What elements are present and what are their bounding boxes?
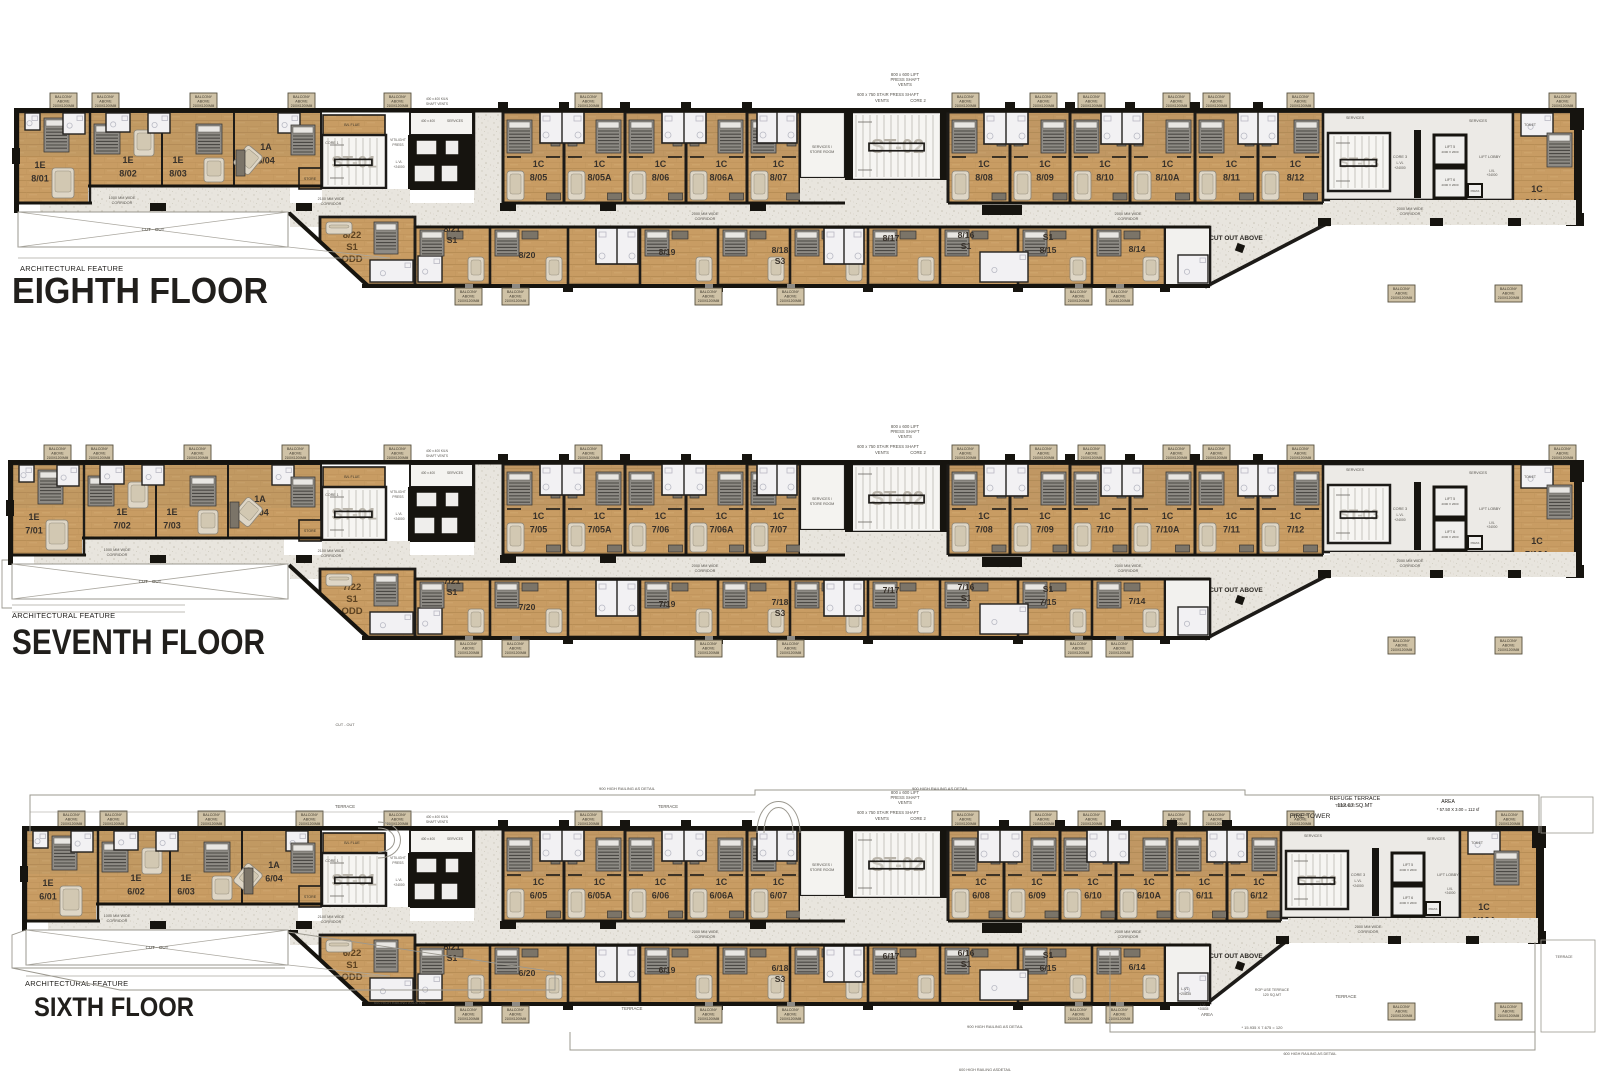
svg-text:ABOVE: ABOVE bbox=[1085, 452, 1098, 456]
svg-text:S1: S1 bbox=[961, 959, 972, 969]
svg-text:BALCONY: BALCONY bbox=[287, 447, 305, 451]
svg-text:VENTS: VENTS bbox=[898, 800, 912, 805]
svg-text:8/10A: 8/10A bbox=[1155, 173, 1180, 183]
svg-text:BALCONY: BALCONY bbox=[105, 813, 123, 817]
svg-text:1C: 1C bbox=[1226, 511, 1238, 521]
svg-text:TERRACE: TERRACE bbox=[335, 804, 355, 809]
svg-text:1C: 1C bbox=[1031, 877, 1043, 887]
svg-text:S1: S1 bbox=[346, 960, 358, 971]
svg-text:BALCONY: BALCONY bbox=[507, 290, 525, 294]
svg-text:1C: 1C bbox=[716, 511, 728, 521]
svg-text:1A: 1A bbox=[254, 494, 266, 504]
svg-text:+24000: +24000 bbox=[393, 165, 404, 169]
svg-text:1C: 1C bbox=[1290, 511, 1302, 521]
svg-text:8/14: 8/14 bbox=[1129, 244, 1146, 254]
svg-text:CUT - OUT: CUT - OUT bbox=[335, 723, 355, 727]
svg-text:ABOVE: ABOVE bbox=[1085, 818, 1098, 822]
svg-text:LIFT LOBBY: LIFT LOBBY bbox=[1479, 155, 1501, 159]
svg-text:BALCONY: BALCONY bbox=[63, 813, 81, 817]
svg-text:S1: S1 bbox=[1043, 584, 1054, 594]
svg-text:2100X1200MM: 2100X1200MM bbox=[698, 1017, 720, 1021]
svg-text:8/10: 8/10 bbox=[1096, 173, 1114, 183]
svg-text:BALCONY: BALCONY bbox=[957, 95, 975, 99]
svg-text:S1: S1 bbox=[961, 241, 972, 251]
svg-text:2100X1200MM: 2100X1200MM bbox=[698, 651, 720, 655]
svg-text:7/11: 7/11 bbox=[1223, 525, 1240, 535]
svg-text:ABOVE: ABOVE bbox=[784, 647, 797, 651]
svg-text:120 SQ.MT: 120 SQ.MT bbox=[1263, 993, 1282, 997]
svg-text:BALCONY: BALCONY bbox=[1035, 813, 1053, 817]
svg-text:1C: 1C bbox=[773, 511, 785, 521]
svg-text:SHAFT VENTS: SHAFT VENTS bbox=[426, 820, 448, 824]
svg-text:1C: 1C bbox=[1531, 184, 1543, 194]
svg-text:+24000: +24000 bbox=[1394, 518, 1406, 522]
svg-text:ABOVE: ABOVE bbox=[99, 100, 112, 104]
svg-text:CORRIDOR: CORRIDOR bbox=[695, 935, 716, 939]
svg-text:LIFT 6: LIFT 6 bbox=[1445, 178, 1455, 182]
svg-text:2100X1200MM: 2100X1200MM bbox=[291, 104, 313, 108]
svg-text:CORRIDOR: CORRIDOR bbox=[1400, 212, 1421, 216]
svg-text:ABOVE: ABOVE bbox=[1170, 100, 1183, 104]
svg-text:2100X1200MM: 2100X1200MM bbox=[1109, 1017, 1131, 1021]
svg-text:1C: 1C bbox=[773, 159, 785, 169]
svg-text:2100X1200MM: 2100X1200MM bbox=[955, 456, 977, 460]
svg-text:600 HIGH RAILING ASDETAIL: 600 HIGH RAILING ASDETAIL bbox=[374, 1001, 426, 1005]
svg-text:2100X1200MM: 2100X1200MM bbox=[1109, 651, 1131, 655]
svg-text:BALCONY: BALCONY bbox=[49, 447, 67, 451]
svg-text:8/02: 8/02 bbox=[119, 169, 137, 179]
svg-text:1C: 1C bbox=[773, 877, 785, 887]
svg-text:2000 MM WIDE: 2000 MM WIDE bbox=[692, 930, 719, 934]
svg-text:ABOVE: ABOVE bbox=[391, 100, 404, 104]
svg-text:1C: 1C bbox=[1226, 159, 1238, 169]
svg-text:1C: 1C bbox=[1531, 536, 1543, 546]
svg-text:SIXTH FLOOR: SIXTH FLOOR bbox=[34, 992, 194, 1022]
svg-text:FIRE TOWER: FIRE TOWER bbox=[1290, 813, 1331, 820]
svg-text:8/12: 8/12 bbox=[1287, 173, 1305, 183]
svg-text:2100X1200MM: 2100X1200MM bbox=[1290, 456, 1312, 460]
svg-text:BALCONY: BALCONY bbox=[1168, 447, 1186, 451]
svg-text:2000 X 2600: 2000 X 2600 bbox=[1399, 868, 1416, 872]
svg-text:L.VL: L.VL bbox=[1397, 513, 1404, 517]
svg-text:1C: 1C bbox=[594, 159, 606, 169]
svg-text:BALCONY: BALCONY bbox=[203, 813, 221, 817]
svg-text:7/19: 7/19 bbox=[659, 599, 676, 609]
svg-text:2100X1200MM: 2100X1200MM bbox=[1206, 456, 1228, 460]
svg-text:8/01: 8/01 bbox=[31, 174, 49, 184]
svg-text:BALCONY: BALCONY bbox=[782, 642, 800, 646]
svg-text:1C: 1C bbox=[1087, 877, 1099, 887]
svg-text:ABOVE: ABOVE bbox=[959, 818, 972, 822]
svg-text:STORE: STORE bbox=[304, 895, 317, 899]
svg-text:ABOVE: ABOVE bbox=[191, 452, 204, 456]
svg-text:1C: 1C bbox=[594, 877, 606, 887]
svg-text:TERRACE: TERRACE bbox=[622, 1006, 643, 1011]
svg-text:2000 X 2600: 2000 X 2600 bbox=[1441, 535, 1458, 539]
svg-text:BALCONY: BALCONY bbox=[700, 642, 718, 646]
svg-text:ABOVE: ABOVE bbox=[1294, 452, 1307, 456]
svg-text:BALCONY: BALCONY bbox=[700, 1008, 718, 1012]
svg-text:2000 MM WIDE: 2000 MM WIDE bbox=[1397, 559, 1424, 563]
svg-text:1C: 1C bbox=[594, 511, 606, 521]
svg-text:7/20: 7/20 bbox=[519, 602, 536, 612]
svg-text:2100X1200MM: 2100X1200MM bbox=[1068, 1017, 1090, 1021]
svg-text:S3: S3 bbox=[775, 256, 786, 266]
svg-text:ABOVE: ABOVE bbox=[1210, 100, 1223, 104]
svg-text:BALCONY: BALCONY bbox=[700, 290, 718, 294]
svg-text:ABOVE: ABOVE bbox=[462, 1013, 475, 1017]
svg-text:CUT - OUT: CUT - OUT bbox=[146, 945, 169, 950]
svg-text:8/20: 8/20 bbox=[519, 250, 536, 260]
svg-text:1E: 1E bbox=[130, 873, 141, 883]
svg-text:8/09: 8/09 bbox=[1036, 173, 1054, 183]
svg-text:SERVICES: SERVICES bbox=[447, 119, 463, 123]
svg-text:ABOVE: ABOVE bbox=[1210, 452, 1223, 456]
svg-text:L.VL: L.VL bbox=[1355, 879, 1362, 883]
svg-text:2000 X 2600: 2000 X 2600 bbox=[1441, 502, 1458, 506]
svg-text:ABOVE: ABOVE bbox=[1294, 100, 1307, 104]
svg-text:CORRIDOR: CORRIDOR bbox=[1400, 564, 1421, 568]
svg-text:7/08: 7/08 bbox=[975, 525, 993, 535]
svg-text:AREA: AREA bbox=[1201, 1012, 1213, 1017]
svg-text:CORRIDOR: CORRIDOR bbox=[321, 920, 342, 924]
svg-text:BALCONY: BALCONY bbox=[1111, 1008, 1129, 1012]
svg-text:VENTS: VENTS bbox=[875, 450, 889, 455]
svg-text:CORE 1: CORE 1 bbox=[325, 859, 338, 863]
svg-text:BALCONY: BALCONY bbox=[460, 642, 478, 646]
svg-text:2100X1200MM: 2100X1200MM bbox=[299, 822, 321, 826]
svg-text:1E: 1E bbox=[166, 507, 177, 517]
svg-text:ABOVE: ABOVE bbox=[959, 100, 972, 104]
svg-text:ABOVE: ABOVE bbox=[93, 452, 106, 456]
svg-text:1C: 1C bbox=[533, 511, 545, 521]
svg-text:SERVICES: SERVICES bbox=[1427, 837, 1446, 841]
svg-text:ABOVE: ABOVE bbox=[1502, 292, 1515, 296]
svg-text:6/05: 6/05 bbox=[530, 891, 548, 901]
svg-text:7/03: 7/03 bbox=[163, 521, 181, 531]
svg-text:2100X1200MM: 2100X1200MM bbox=[1081, 456, 1103, 460]
svg-text:1E: 1E bbox=[116, 507, 127, 517]
svg-text:SERVICES /: SERVICES / bbox=[812, 863, 832, 867]
svg-text:6/12: 6/12 bbox=[1250, 891, 1268, 901]
svg-text:BALCONY: BALCONY bbox=[1111, 642, 1129, 646]
svg-text:CORE 3: CORE 3 bbox=[1393, 507, 1407, 511]
svg-text:7/02: 7/02 bbox=[113, 521, 131, 531]
svg-text:2100X1200MM: 2100X1200MM bbox=[95, 104, 117, 108]
svg-text:2100X1200MM: 2100X1200MM bbox=[1498, 1014, 1520, 1018]
svg-text:BALCONY: BALCONY bbox=[507, 1008, 525, 1012]
svg-text:1C: 1C bbox=[533, 159, 545, 169]
svg-text:ABOVE: ABOVE bbox=[1072, 295, 1085, 299]
svg-text:SERVICES: SERVICES bbox=[1469, 119, 1488, 123]
svg-text:6/18: 6/18 bbox=[772, 963, 789, 973]
svg-text:1C: 1C bbox=[1478, 902, 1490, 912]
svg-text:CORE 2: CORE 2 bbox=[910, 816, 926, 821]
svg-text:LIFT 6: LIFT 6 bbox=[1445, 530, 1455, 534]
svg-text:1A: 1A bbox=[260, 142, 272, 152]
svg-text:2100X1200MM: 2100X1200MM bbox=[1081, 104, 1103, 108]
svg-text:CORE 2: CORE 2 bbox=[910, 98, 926, 103]
svg-text:2000 X 2600: 2000 X 2600 bbox=[1441, 150, 1458, 154]
svg-text:TOILET: TOILET bbox=[1471, 841, 1483, 845]
svg-text:2100X1200MM: 2100X1200MM bbox=[89, 456, 111, 460]
svg-text:S1: S1 bbox=[346, 242, 358, 253]
svg-text:CORRIDOR: CORRIDOR bbox=[1118, 217, 1139, 221]
svg-text:8/19: 8/19 bbox=[659, 247, 676, 257]
svg-text:S1: S1 bbox=[1043, 950, 1054, 960]
svg-text:2100X1200MM: 2100X1200MM bbox=[1068, 299, 1090, 303]
svg-text:CORRIDOR: CORRIDOR bbox=[1118, 935, 1139, 939]
svg-text:ABOVE: ABOVE bbox=[1502, 1010, 1515, 1014]
svg-text:ABOVE: ABOVE bbox=[462, 647, 475, 651]
svg-text:8/16: 8/16 bbox=[958, 230, 975, 240]
svg-text:BALCONY: BALCONY bbox=[1083, 95, 1101, 99]
svg-text:CORE 2: CORE 2 bbox=[910, 450, 926, 455]
svg-text:BALCONY: BALCONY bbox=[1070, 642, 1088, 646]
svg-text:1C: 1C bbox=[533, 877, 545, 887]
svg-text:2100X1200MM: 2100X1200MM bbox=[1391, 1014, 1413, 1018]
svg-text:B/L FLUE: B/L FLUE bbox=[344, 123, 360, 127]
svg-text:6/05A: 6/05A bbox=[587, 891, 612, 901]
svg-text:ABOVE: ABOVE bbox=[462, 295, 475, 299]
svg-text:PRESS: PRESS bbox=[392, 143, 404, 147]
svg-text:BALCONY: BALCONY bbox=[1500, 1005, 1518, 1009]
svg-text:S3: S3 bbox=[775, 974, 786, 984]
svg-text:2100X1200MM: 2100X1200MM bbox=[505, 651, 527, 655]
svg-text:LIFT LOBBY: LIFT LOBBY bbox=[1437, 873, 1459, 877]
svg-text:1E: 1E bbox=[172, 155, 183, 165]
svg-text:SERVICES: SERVICES bbox=[1346, 116, 1365, 120]
svg-text:2100X1200MM: 2100X1200MM bbox=[505, 299, 527, 303]
svg-text:ABOVE: ABOVE bbox=[1210, 818, 1223, 822]
svg-text:B/L FLUE: B/L FLUE bbox=[344, 475, 360, 479]
svg-text:L.VL: L.VL bbox=[396, 160, 403, 164]
svg-text:ABOVE: ABOVE bbox=[65, 818, 78, 822]
svg-text:6/15: 6/15 bbox=[1040, 963, 1057, 973]
svg-text:LIFT 5: LIFT 5 bbox=[1445, 497, 1455, 501]
svg-text:PRESS: PRESS bbox=[392, 495, 404, 499]
svg-text:CUT - OUT: CUT - OUT bbox=[142, 227, 165, 232]
svg-text:CUT OUT ABOVE: CUT OUT ABOVE bbox=[1209, 953, 1263, 960]
svg-text:ABOVE: ABOVE bbox=[1395, 292, 1408, 296]
svg-text:1E: 1E bbox=[28, 512, 39, 522]
svg-text:7/09: 7/09 bbox=[1036, 525, 1054, 535]
svg-text:ABOVE: ABOVE bbox=[1072, 647, 1085, 651]
svg-text:1C: 1C bbox=[1039, 511, 1051, 521]
svg-text:STORE ROOM: STORE ROOM bbox=[810, 150, 835, 154]
svg-text:CORRIDOR: CORRIDOR bbox=[695, 569, 716, 573]
svg-text:CORE 3: CORE 3 bbox=[1351, 873, 1365, 877]
svg-text:2100X1200MM: 2100X1200MM bbox=[1166, 456, 1188, 460]
svg-text:SERVICES /: SERVICES / bbox=[812, 497, 832, 501]
svg-text:ABOVE: ABOVE bbox=[303, 818, 316, 822]
svg-text:CUT - OUT: CUT - OUT bbox=[139, 579, 162, 584]
svg-text:BALCONY: BALCONY bbox=[1208, 95, 1226, 99]
svg-text:BALCONY: BALCONY bbox=[1393, 287, 1411, 291]
svg-text:BALCONY: BALCONY bbox=[91, 447, 109, 451]
svg-text:1000 MM WIDE: 1000 MM WIDE bbox=[109, 196, 136, 200]
svg-text:+24000: +24000 bbox=[393, 517, 404, 521]
svg-text:BALCONY: BALCONY bbox=[1168, 813, 1186, 817]
svg-text:1A: 1A bbox=[268, 860, 280, 870]
svg-text:2100X1200MM: 2100X1200MM bbox=[780, 299, 802, 303]
svg-text:SERVICES /: SERVICES / bbox=[812, 145, 832, 149]
svg-text:2100X1200MM: 2100X1200MM bbox=[1206, 104, 1228, 108]
svg-text:2100X1200MM: 2100X1200MM bbox=[387, 456, 409, 460]
svg-text:1C: 1C bbox=[978, 511, 990, 521]
svg-text:SERVICES: SERVICES bbox=[1304, 834, 1323, 838]
svg-text:1C: 1C bbox=[1290, 159, 1302, 169]
svg-text:2100X1200MM: 2100X1200MM bbox=[187, 456, 209, 460]
svg-text:1C: 1C bbox=[1199, 877, 1211, 887]
svg-text:2100X1200MM: 2100X1200MM bbox=[1498, 648, 1520, 652]
svg-text:7/10A: 7/10A bbox=[1155, 525, 1180, 535]
svg-text:CORRIDOR: CORRIDOR bbox=[1358, 930, 1379, 934]
svg-text:ROP USE TERRACE: ROP USE TERRACE bbox=[1255, 988, 1290, 992]
svg-text:6/10: 6/10 bbox=[1084, 891, 1102, 901]
svg-text:ABOVE: ABOVE bbox=[57, 100, 70, 104]
svg-text:BALCONY: BALCONY bbox=[580, 813, 598, 817]
svg-text:BALCONY: BALCONY bbox=[1393, 1005, 1411, 1009]
svg-text:ABOVE: ABOVE bbox=[509, 647, 522, 651]
svg-text:SERVICES: SERVICES bbox=[447, 837, 463, 841]
svg-text:2000 MM WIDE: 2000 MM WIDE bbox=[692, 212, 719, 216]
svg-text:8/03: 8/03 bbox=[169, 169, 187, 179]
svg-text:BALCONY: BALCONY bbox=[1292, 447, 1310, 451]
svg-text:VENTS: VENTS bbox=[875, 98, 889, 103]
svg-text:+24000: +24000 bbox=[1487, 525, 1498, 529]
svg-text:CORRIDOR: CORRIDOR bbox=[321, 554, 342, 558]
svg-text:600 x 750 STAIR PRESS SHAFT: 600 x 750 STAIR PRESS SHAFT bbox=[857, 810, 919, 815]
svg-text:BALCONY: BALCONY bbox=[1393, 639, 1411, 643]
svg-text:BALCONY: BALCONY bbox=[97, 95, 115, 99]
svg-text:400 x 400 KILN: 400 x 400 KILN bbox=[426, 815, 449, 819]
svg-text:900 HIGH RAILING AS DETAIL: 900 HIGH RAILING AS DETAIL bbox=[967, 1024, 1024, 1029]
svg-text:BALCONY: BALCONY bbox=[301, 813, 319, 817]
svg-text:8/07: 8/07 bbox=[770, 173, 788, 183]
svg-text:S1: S1 bbox=[447, 235, 458, 245]
svg-text:+24000: +24000 bbox=[1352, 884, 1364, 888]
svg-text:600 x 750 STAIR PRESS SHAFT: 600 x 750 STAIR PRESS SHAFT bbox=[857, 444, 919, 449]
svg-text:1C: 1C bbox=[716, 159, 728, 169]
svg-text:ABOVE: ABOVE bbox=[702, 647, 715, 651]
svg-text:1C: 1C bbox=[1162, 511, 1174, 521]
svg-text:6/06: 6/06 bbox=[652, 891, 670, 901]
svg-text:ABOVE: ABOVE bbox=[1113, 1013, 1126, 1017]
svg-text:STORE ROOM: STORE ROOM bbox=[810, 868, 835, 872]
svg-text:TERRACE: TERRACE bbox=[1336, 994, 1357, 999]
svg-text:2100X1200MM: 2100X1200MM bbox=[285, 456, 307, 460]
svg-text:2100X1200MM: 2100X1200MM bbox=[387, 104, 409, 108]
svg-text:8/18: 8/18 bbox=[772, 245, 789, 255]
svg-text:BALCONY: BALCONY bbox=[189, 447, 207, 451]
svg-text:600 HIGH RAILING ASDETAIL: 600 HIGH RAILING ASDETAIL bbox=[959, 1068, 1011, 1072]
svg-text:CORRIDOR: CORRIDOR bbox=[321, 202, 342, 206]
svg-text:1E: 1E bbox=[42, 878, 53, 888]
svg-text:1C: 1C bbox=[1039, 159, 1051, 169]
svg-text:2100X1200MM: 2100X1200MM bbox=[505, 1017, 527, 1021]
svg-text:ABOVE: ABOVE bbox=[107, 818, 120, 822]
svg-text:BALCONY: BALCONY bbox=[1083, 813, 1101, 817]
svg-text:2100X1200MM: 2100X1200MM bbox=[578, 104, 600, 108]
svg-text:CORRIDOR: CORRIDOR bbox=[107, 553, 128, 557]
svg-text:BALCONY: BALCONY bbox=[1070, 290, 1088, 294]
svg-text:1C: 1C bbox=[655, 877, 667, 887]
svg-text:BALCONY: BALCONY bbox=[55, 95, 73, 99]
svg-text:6/14: 6/14 bbox=[1129, 962, 1146, 972]
svg-text:ABOVE: ABOVE bbox=[582, 452, 595, 456]
svg-text:BALCONY: BALCONY bbox=[1292, 95, 1310, 99]
svg-text:ABOVE: ABOVE bbox=[1503, 818, 1516, 822]
svg-text:CORRIDOR: CORRIDOR bbox=[107, 919, 128, 923]
svg-text:2100X1200MM: 2100X1200MM bbox=[1391, 296, 1413, 300]
svg-text:+24000: +24000 bbox=[1394, 166, 1406, 170]
svg-text:BALCONY: BALCONY bbox=[1501, 813, 1519, 817]
svg-text:S1: S1 bbox=[961, 593, 972, 603]
svg-text:112.67 SQ.MT: 112.67 SQ.MT bbox=[1337, 803, 1373, 809]
svg-text:ABOVE: ABOVE bbox=[784, 295, 797, 299]
svg-text:400 x 400: 400 x 400 bbox=[421, 119, 435, 123]
svg-text:2100X1200MM: 2100X1200MM bbox=[1290, 104, 1312, 108]
svg-text:ABOVE: ABOVE bbox=[205, 818, 218, 822]
svg-text:6/09: 6/09 bbox=[1028, 891, 1046, 901]
svg-text:BALCONY: BALCONY bbox=[782, 1008, 800, 1012]
svg-text:2100 MM WIDE: 2100 MM WIDE bbox=[318, 197, 345, 201]
svg-text:TOILET: TOILET bbox=[1524, 123, 1536, 127]
svg-text:2100X1200MM: 2100X1200MM bbox=[1033, 104, 1055, 108]
svg-text:2100X1200MM: 2100X1200MM bbox=[698, 299, 720, 303]
svg-text:1C: 1C bbox=[655, 511, 667, 521]
svg-text:SERVICES: SERVICES bbox=[447, 471, 463, 475]
svg-text:6/04: 6/04 bbox=[265, 874, 283, 884]
svg-text:LIFT 5: LIFT 5 bbox=[1445, 145, 1455, 149]
svg-text:2000 MM WIDE: 2000 MM WIDE bbox=[692, 564, 719, 568]
svg-text:2100X1200MM: 2100X1200MM bbox=[61, 822, 83, 826]
svg-text:ABOVE: ABOVE bbox=[289, 452, 302, 456]
svg-text:ABOVE: ABOVE bbox=[1037, 100, 1050, 104]
svg-text:CUT OUT ABOVE: CUT OUT ABOVE bbox=[1209, 235, 1263, 242]
svg-text:600 x 750 STAIR PRESS SHAFT: 600 x 750 STAIR PRESS SHAFT bbox=[857, 92, 919, 97]
svg-text:SERVICES: SERVICES bbox=[1346, 468, 1365, 472]
svg-text:BALCONY: BALCONY bbox=[1083, 447, 1101, 451]
svg-text:1C: 1C bbox=[1253, 877, 1265, 887]
svg-text:900 HIGH RAILING AS DETAIL: 900 HIGH RAILING AS DETAIL bbox=[912, 786, 969, 791]
svg-text:8/05: 8/05 bbox=[530, 173, 548, 183]
svg-text:2100X1200MM: 2100X1200MM bbox=[458, 1017, 480, 1021]
svg-text:7/12: 7/12 bbox=[1287, 525, 1305, 535]
svg-text:2000 X 2600: 2000 X 2600 bbox=[1441, 183, 1458, 187]
svg-text:2100X1200MM: 2100X1200MM bbox=[780, 651, 802, 655]
svg-text:VITILIGHT: VITILIGHT bbox=[390, 490, 406, 494]
svg-text:2100X1200MM: 2100X1200MM bbox=[1033, 456, 1055, 460]
svg-text:6/01: 6/01 bbox=[39, 892, 57, 902]
svg-text:400 x 400 KILN: 400 x 400 KILN bbox=[426, 449, 449, 453]
svg-text:VENTS: VENTS bbox=[898, 82, 912, 87]
svg-text:BALCONY: BALCONY bbox=[1500, 639, 1518, 643]
svg-text:2000 X 2600: 2000 X 2600 bbox=[1399, 901, 1416, 905]
svg-text:BALCONY: BALCONY bbox=[389, 813, 407, 817]
svg-text:BALCONY: BALCONY bbox=[1070, 1008, 1088, 1012]
svg-text:2100X1200MM: 2100X1200MM bbox=[1498, 296, 1520, 300]
svg-text:STORE: STORE bbox=[304, 529, 317, 533]
svg-text:+20835: +20835 bbox=[1198, 1007, 1209, 1011]
svg-text:ABOVE: ABOVE bbox=[582, 100, 595, 104]
svg-text:EIGHTH FLOOR: EIGHTH FLOOR bbox=[12, 270, 268, 311]
svg-text:LIFT LOBBY: LIFT LOBBY bbox=[1479, 507, 1501, 511]
svg-text:2100X1200MM: 2100X1200MM bbox=[955, 822, 977, 826]
svg-text:2100X1200MM: 2100X1200MM bbox=[1391, 648, 1413, 652]
svg-text:TERRACE: TERRACE bbox=[658, 804, 678, 809]
